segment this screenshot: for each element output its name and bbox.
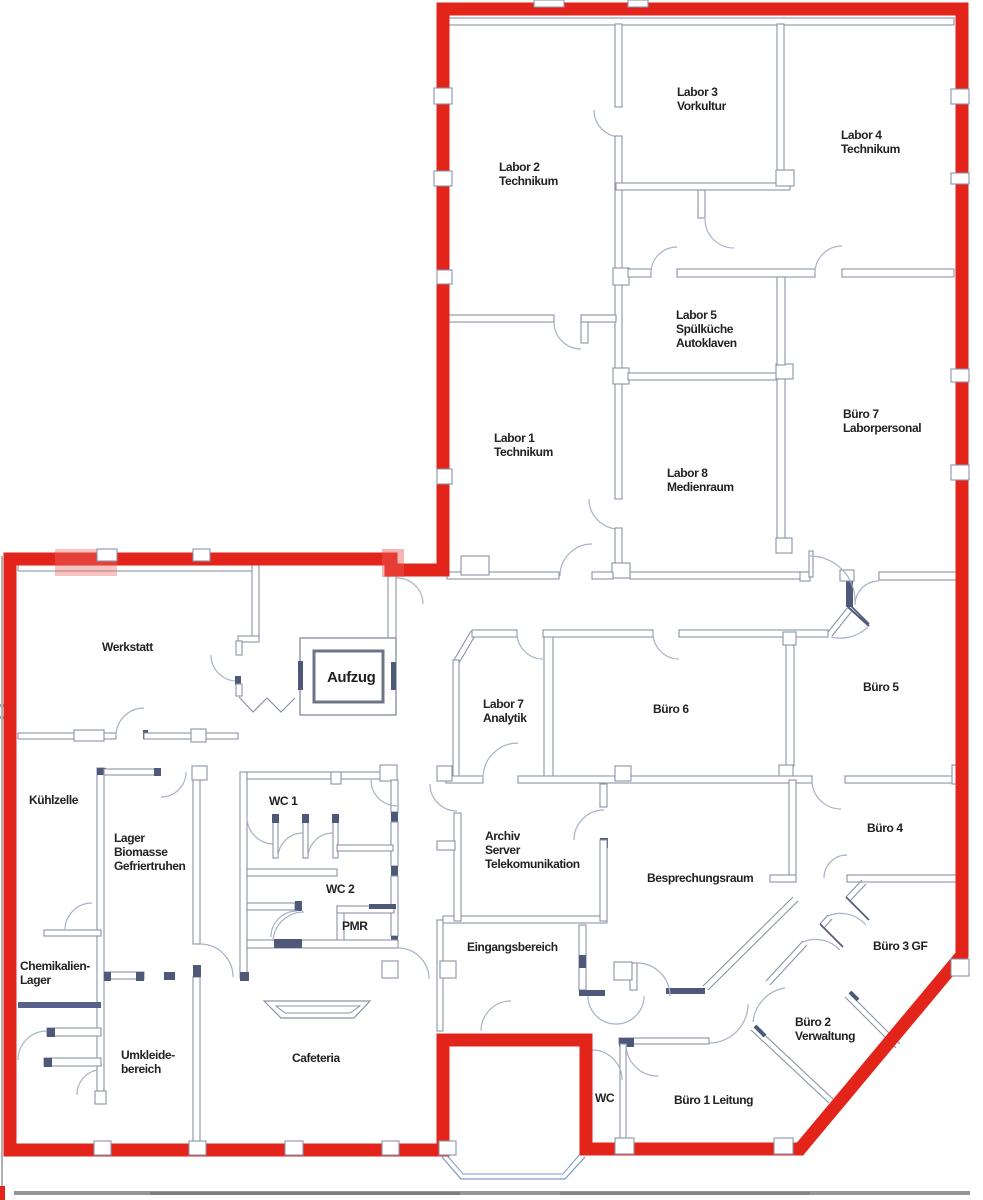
svg-text:Kühlzelle: Kühlzelle — [29, 793, 79, 807]
svg-text:WC: WC — [595, 1091, 615, 1105]
svg-text:WC 1: WC 1 — [269, 794, 298, 808]
svg-text:Büro 5: Büro 5 — [863, 680, 899, 694]
svg-text:Aufzug: Aufzug — [327, 669, 376, 686]
svg-text:Eingangsbereich: Eingangsbereich — [467, 940, 558, 954]
svg-text:Büro 6: Büro 6 — [653, 702, 689, 716]
svg-text:Büro 1 Leitung: Büro 1 Leitung — [674, 1093, 753, 1107]
svg-text:Cafeteria: Cafeteria — [292, 1051, 340, 1065]
svg-text:PMR: PMR — [342, 919, 368, 933]
svg-text:Büro 3 GF: Büro 3 GF — [873, 939, 927, 953]
svg-text:Besprechungsraum: Besprechungsraum — [647, 871, 753, 885]
svg-text:Büro 4: Büro 4 — [867, 821, 903, 835]
svg-text:Werkstatt: Werkstatt — [102, 640, 153, 654]
svg-text:Labor 7Analytik: Labor 7Analytik — [483, 697, 527, 725]
svg-text:WC 2: WC 2 — [326, 882, 355, 896]
